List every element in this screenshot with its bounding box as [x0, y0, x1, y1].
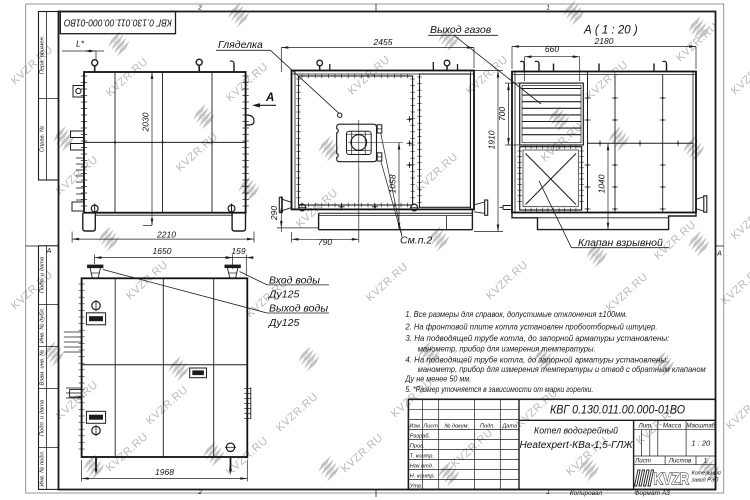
svg-text:Утв.: Утв. [409, 484, 423, 490]
svg-text:Котел водогрейный: Котел водогрейный [534, 426, 619, 437]
svg-text:Ду125: Ду125 [268, 317, 299, 329]
svg-text:2030: 2030 [141, 112, 151, 132]
svg-text:290: 290 [269, 206, 279, 221]
svg-text:159: 159 [231, 246, 245, 256]
svg-text:Лист: Лист [634, 458, 651, 465]
svg-text:Формат А3: Формат А3 [634, 490, 670, 497]
svg-text:660: 660 [545, 44, 559, 54]
svg-text:2. На фронтовой плите котла ус: 2. На фронтовой плите котла установлен п… [404, 322, 657, 331]
svg-text:KVZR: KVZR [654, 470, 690, 489]
svg-text:Масштаб: Масштаб [686, 422, 715, 429]
svg-text:KVZR.RU: KVZR.RU [464, 54, 511, 98]
svg-text:KVZR.RU: KVZR.RU [294, 187, 341, 231]
svg-text:А: А [265, 92, 274, 104]
svg-text:Лит.: Лит. [637, 422, 653, 429]
svg-text:700: 700 [497, 107, 507, 121]
svg-text:Перв. примен.: Перв. примен. [40, 36, 46, 75]
svg-text:KVZR.RU: KVZR.RU [54, 154, 101, 198]
svg-text:1 : 20: 1 : 20 [691, 439, 711, 448]
svg-text:Гляделка: Гляделка [218, 39, 263, 51]
svg-text:790: 790 [318, 237, 332, 247]
svg-text:Подп.: Подп. [480, 424, 495, 430]
svg-text:Инв. № подл.: Инв. № подл. [40, 451, 46, 487]
svg-text:Ду не менее 50 мм.: Ду не менее 50 мм. [405, 374, 472, 383]
svg-text:Выход газов: Выход газов [430, 24, 492, 36]
svg-text:КВГ 0.130.011.00.000-01ВО: КВГ 0.130.011.00.000-01ВО [550, 405, 685, 417]
svg-text:KVZR.RU: KVZR.RU [346, 54, 393, 98]
svg-text:KVZR.RU: KVZR.RU [274, 391, 321, 435]
svg-text:1040: 1040 [597, 174, 607, 193]
svg-text:2: 2 [197, 489, 202, 496]
svg-text:KVZR.RU: KVZR.RU [484, 259, 531, 303]
svg-text:А ( 1 : 20 ): А ( 1 : 20 ) [583, 25, 638, 37]
svg-text:KVZR.RU: KVZR.RU [144, 384, 191, 428]
svg-text:2210: 2210 [156, 229, 176, 239]
svg-text:Дата: Дата [501, 424, 517, 430]
svg-text:1. Все размеры для справок, до: 1. Все размеры для справок, допустимые о… [405, 310, 627, 319]
svg-text:Инв. № дубл.: Инв. № дубл. [40, 308, 46, 344]
svg-text:KVZR.RU: KVZR.RU [449, 427, 496, 471]
svg-text:Разраб.: Разраб. [410, 433, 430, 439]
svg-text:манометр, прибор для измерения: манометр, прибор для измерения температу… [418, 365, 706, 374]
svg-text:Т. контр.: Т. контр. [410, 454, 434, 460]
svg-text:завод РЭП: завод РЭП [691, 478, 719, 484]
svg-text:Н. контр.: Н. контр. [410, 474, 435, 480]
svg-text:5. *Размер уточняется в зависи: 5. *Размер уточняется в зависимости от м… [405, 385, 593, 394]
svg-text:KVZR.RU: KVZR.RU [414, 151, 461, 195]
svg-text:3. На подводящей трубе котла,: 3. На подводящей трубе котла, до запорно… [405, 334, 669, 343]
svg-text:1910: 1910 [487, 130, 497, 149]
svg-text:Лист: Лист [422, 424, 438, 430]
svg-text:KVZR.RU: KVZR.RU [604, 271, 651, 315]
svg-text:1968: 1968 [155, 467, 174, 477]
svg-text:2180: 2180 [594, 36, 614, 46]
svg-text:KVZR.RU: KVZR.RU [729, 54, 750, 98]
svg-text:А: А [716, 251, 722, 258]
svg-text:L*: L* [76, 39, 85, 49]
svg-text:KVZR.RU: KVZR.RU [174, 131, 221, 175]
svg-text:KVZR.RU: KVZR.RU [104, 56, 151, 100]
svg-text:Heatexpert-КВа-1,5-ГЛЖ: Heatexpert-КВа-1,5-ГЛЖ [520, 440, 634, 451]
svg-text:Подп. и дата: Подп. и дата [40, 256, 46, 293]
svg-text:Справ. №: Справ. № [40, 126, 46, 152]
svg-text:Масса: Масса [663, 422, 682, 429]
svg-text:См.п.2: См.п.2 [400, 235, 432, 247]
svg-text:№ докум.: № докум. [444, 424, 469, 430]
svg-text:KVZR.RU: KVZR.RU [729, 199, 750, 243]
svg-text:KVZR.RU: KVZR.RU [584, 59, 631, 103]
svg-text:Подп. и дата: Подп. и дата [40, 399, 46, 436]
svg-text:KVZR.RU: KVZR.RU [339, 432, 386, 476]
svg-text:4. На подводящей трубе котла,: 4. На подводящей трубе котла, до запорно… [405, 355, 668, 364]
svg-text:KVZR.RU: KVZR.RU [724, 389, 750, 433]
svg-text:1: 1 [546, 5, 550, 12]
svg-text:Нач.отд.: Нач.отд. [410, 464, 434, 470]
svg-text:КВГ 0.130.011.00.000-01ВО: КВГ 0.130.011.00.000-01ВО [64, 16, 172, 27]
svg-text:Клапан взрывной: Клапан взрывной [578, 237, 663, 249]
svg-text:KVZR.RU: KVZR.RU [9, 44, 56, 88]
svg-text:2: 2 [197, 5, 202, 12]
svg-text:Копировал: Копировал [570, 490, 603, 497]
svg-text:Изм.: Изм. [409, 424, 421, 430]
svg-text:Пров.: Пров. [410, 443, 425, 449]
svg-text:KVZR.RU: KVZR.RU [104, 431, 151, 475]
svg-text:1650: 1650 [153, 246, 172, 256]
svg-text:Котельный: Котельный [692, 470, 721, 477]
svg-text:1: 1 [704, 458, 707, 465]
svg-text:Листов: Листов [668, 458, 692, 465]
svg-text:Ду125: Ду125 [268, 289, 299, 301]
svg-text:KVZR.RU: KVZR.RU [9, 269, 56, 313]
svg-text:манометр, прибор для измерения: манометр, прибор для измерения температу… [418, 345, 596, 354]
svg-text:KVZR.RU: KVZR.RU [364, 261, 411, 305]
svg-text:Взам. инв. №: Взам. инв. № [40, 350, 46, 386]
svg-text:2455: 2455 [373, 37, 393, 47]
